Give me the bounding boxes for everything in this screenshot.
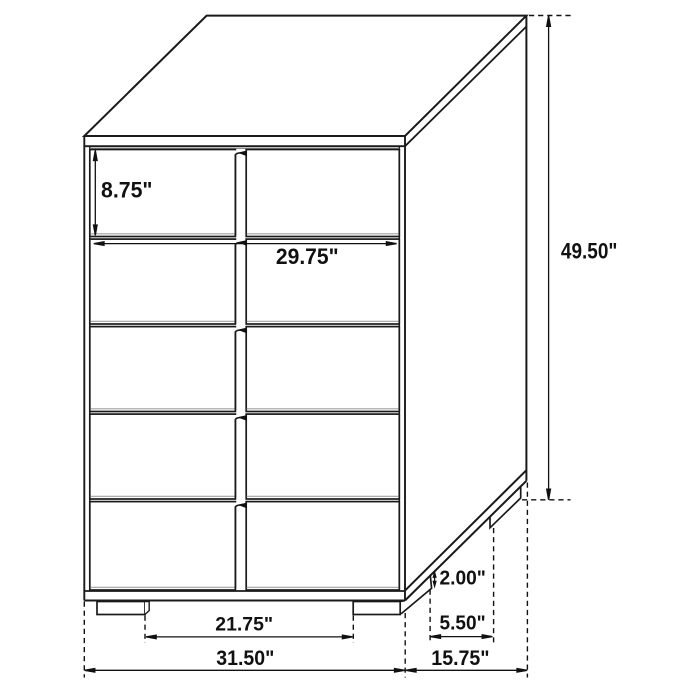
svg-text:21.75": 21.75" [215, 614, 273, 636]
svg-text:29.75": 29.75" [276, 244, 339, 269]
svg-text:15.75": 15.75" [431, 646, 489, 670]
svg-text:5.50": 5.50" [440, 612, 486, 635]
svg-text:2.00": 2.00" [440, 568, 486, 590]
svg-text:31.50": 31.50" [216, 646, 274, 670]
svg-text:8.75": 8.75" [101, 178, 153, 203]
svg-text:49.50": 49.50" [561, 238, 618, 263]
